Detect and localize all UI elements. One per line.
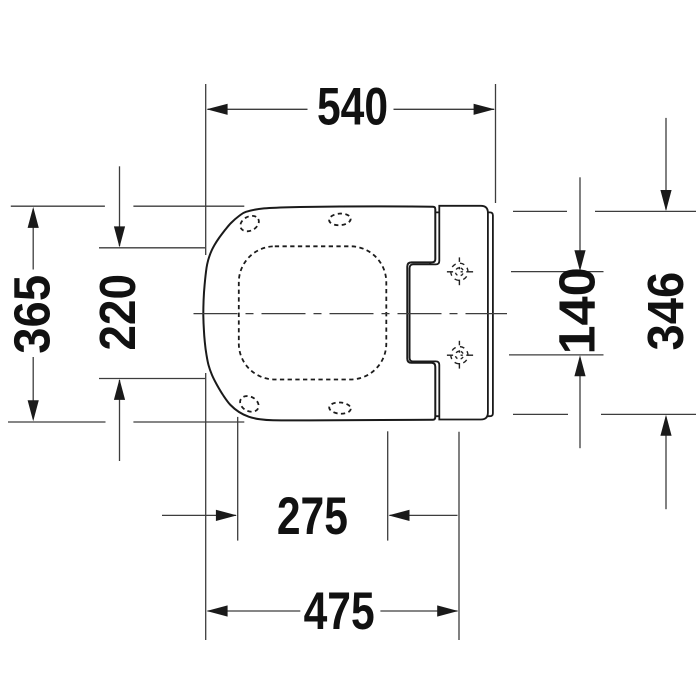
- svg-text:540: 540: [317, 79, 388, 137]
- svg-text:365: 365: [5, 275, 61, 354]
- svg-text:220: 220: [90, 274, 147, 351]
- svg-text:275: 275: [277, 488, 348, 546]
- svg-text:346: 346: [638, 272, 694, 351]
- svg-text:475: 475: [304, 583, 375, 641]
- svg-text:140: 140: [548, 267, 605, 354]
